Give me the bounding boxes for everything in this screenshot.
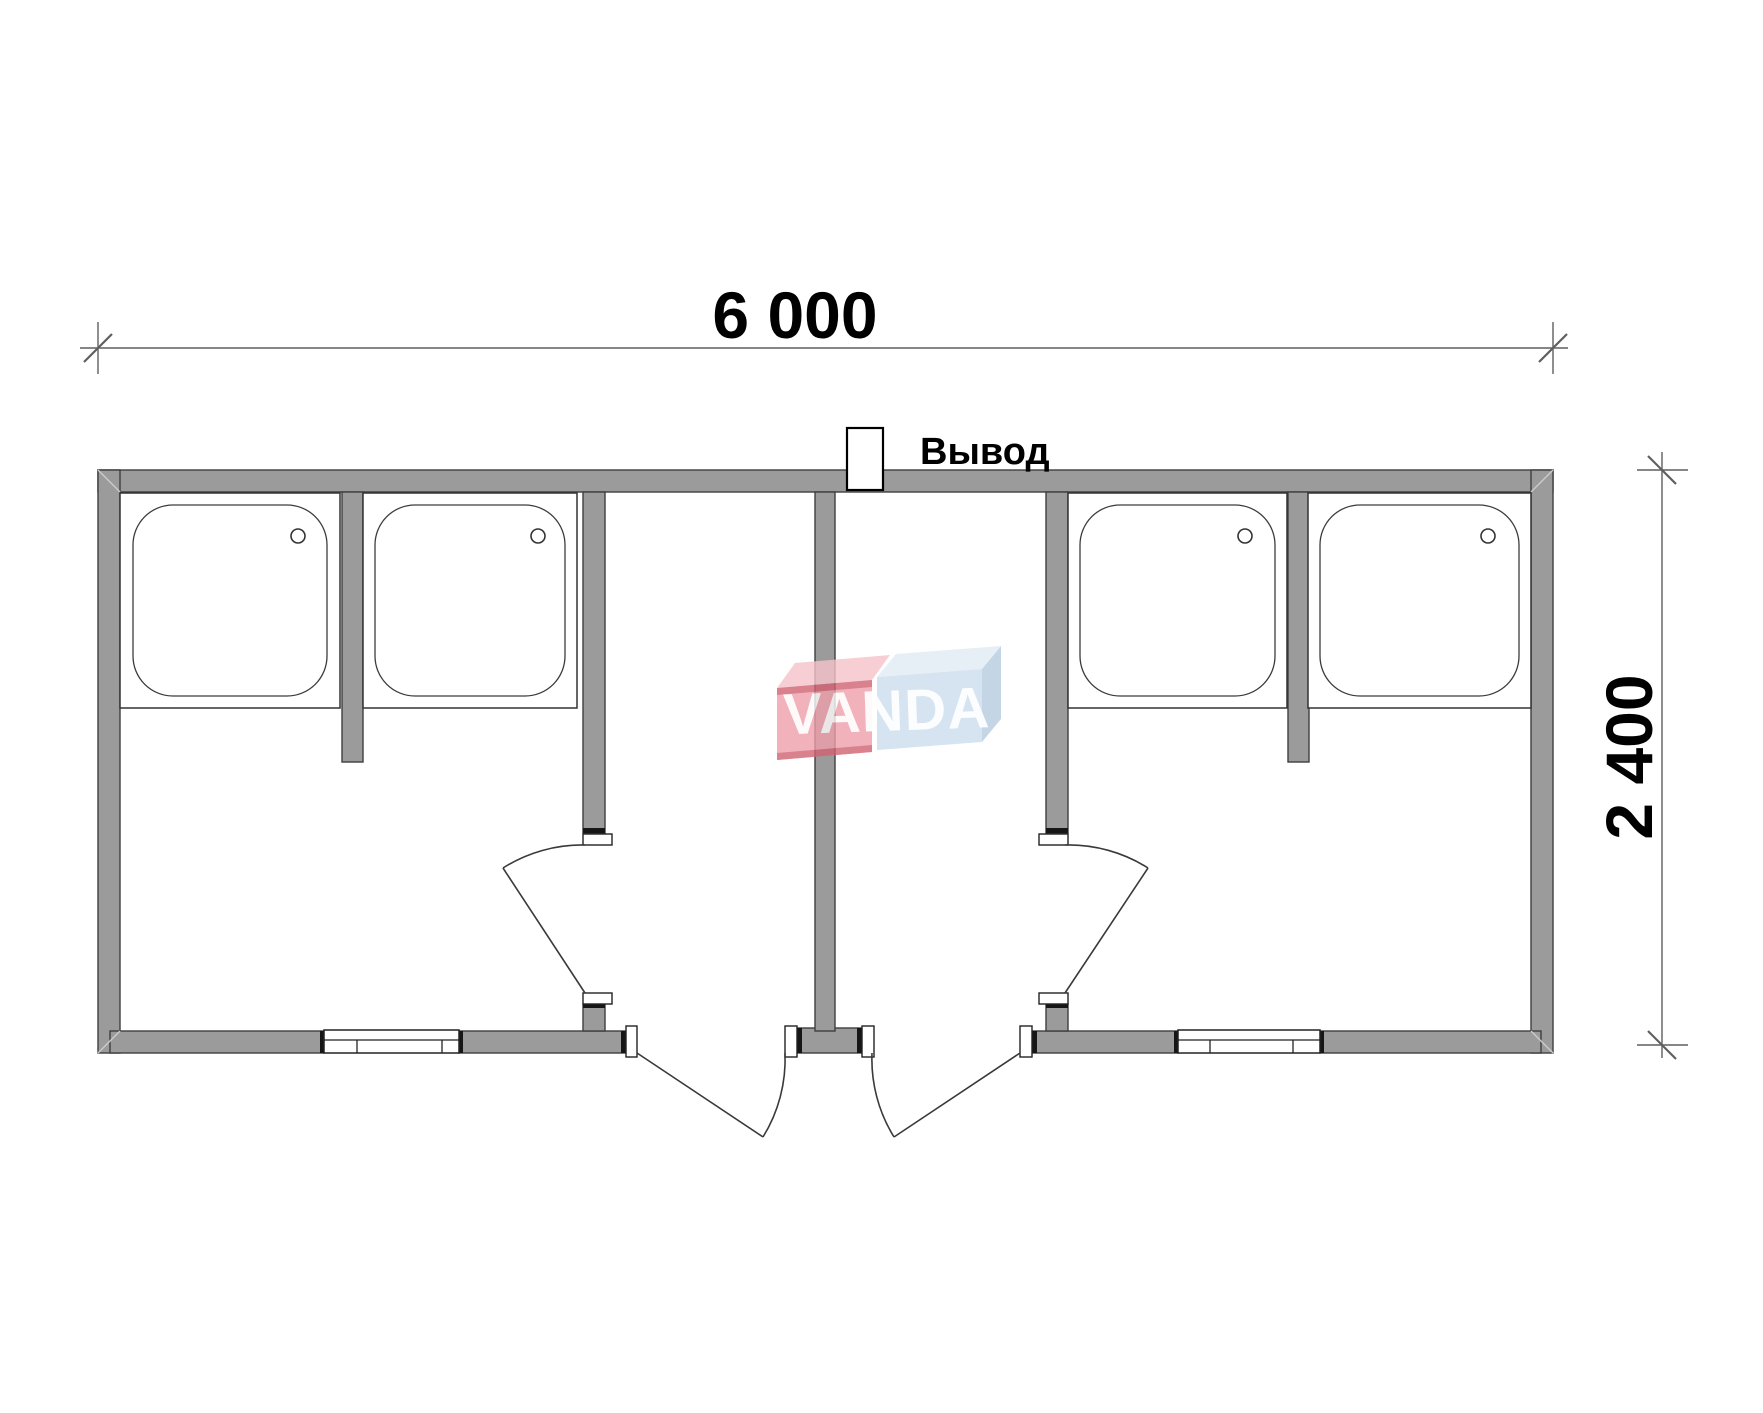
width-dimension-label: 6 000 [712,278,877,352]
door-leaf [637,1053,763,1137]
outlet-label: Вывод [920,431,1050,473]
wall-right [1531,470,1553,1053]
tray-divider-left [342,492,363,762]
drain-icon [1481,529,1495,543]
shower-tray-3 [1068,493,1287,708]
shower-tray-1 [120,493,340,708]
partition-left-stub [583,1004,605,1031]
wall-bottom-seg2 [459,1031,626,1053]
wall-top [98,470,1553,492]
height-dimension-label: 2 400 [1592,674,1666,839]
door-right-entrance [872,1053,1020,1137]
watermark-text: VANDA [782,675,991,747]
drain-icon [531,529,545,543]
shower-tray-4 [1308,493,1531,708]
wall-bottom-seg4 [1320,1031,1541,1053]
jamb [583,834,612,845]
drain-icon [291,529,305,543]
door-swing-arc [763,1053,785,1137]
door-right-shower-room [1065,845,1148,993]
door-leaf [503,868,585,993]
door-left-entrance [637,1053,785,1137]
jamb [1039,993,1068,1004]
door-leaf [894,1053,1020,1137]
floor-plan-canvas: 6 000 2 400 [0,0,1763,1413]
jamb [626,1026,637,1057]
jamb [862,1026,874,1057]
partition-right-stub [1046,1004,1068,1031]
wall-bottom-seg3 [1032,1031,1178,1053]
partition-left-upper [583,492,605,833]
window-left [324,1030,459,1053]
utility-outlet-box [847,428,883,490]
door-swing-arc [1065,845,1148,868]
jamb [785,1026,797,1057]
jamb [1039,834,1068,845]
wall-center-divider [815,492,835,1031]
shower-tray-2 [363,493,577,708]
door-leaf [1065,868,1148,993]
vanda-watermark: VANDA [777,646,1001,760]
drain-icon [1238,529,1252,543]
tray-divider-right [1288,492,1309,762]
partition-right-upper [1046,492,1068,833]
wall-center-foot [797,1028,862,1053]
door-swing-arc [503,845,585,868]
window-frame [1178,1030,1320,1053]
window-frame [324,1030,459,1053]
wall-bottom-seg1 [110,1031,324,1053]
jamb [1020,1026,1032,1057]
door-swing-arc [872,1053,894,1137]
window-right [1178,1030,1320,1053]
door-left-shower-room [503,845,585,993]
wall-left [98,470,120,1053]
floor-plan-drawing: 6 000 2 400 [0,0,1763,1413]
jamb [583,993,612,1004]
